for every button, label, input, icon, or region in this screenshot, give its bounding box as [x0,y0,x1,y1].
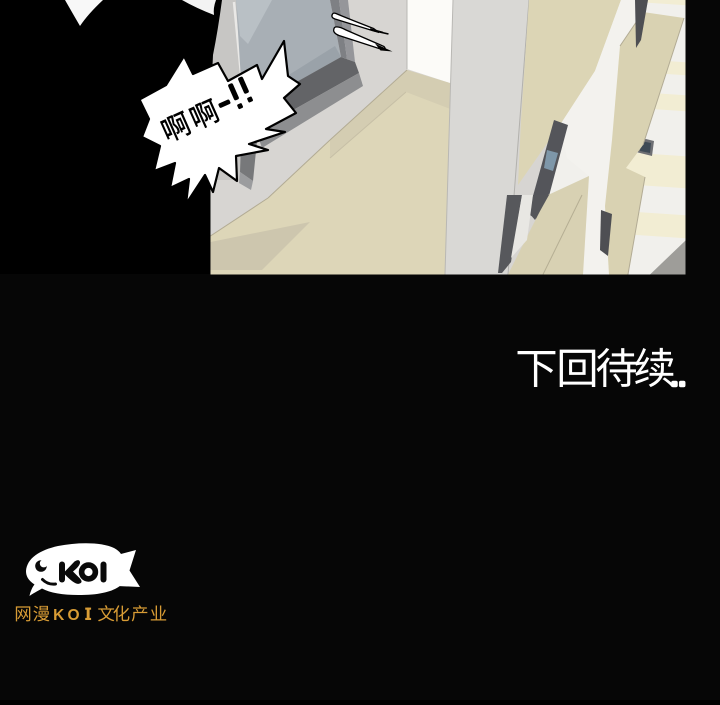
svg-text:K: K [53,607,65,624]
svg-text:O: O [68,607,80,624]
